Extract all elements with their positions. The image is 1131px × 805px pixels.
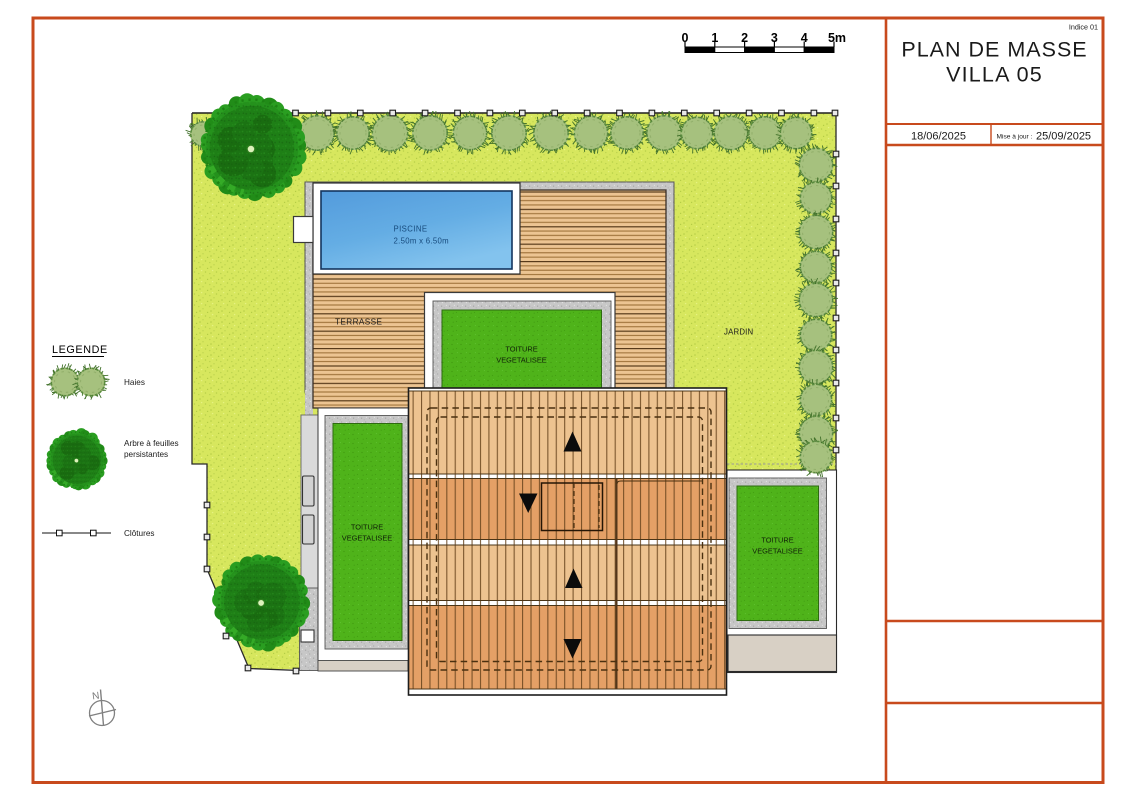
svg-text:PISCINE: PISCINE xyxy=(394,225,428,234)
svg-text:25/09/2025: 25/09/2025 xyxy=(1036,131,1091,143)
svg-text:2: 2 xyxy=(741,31,748,45)
svg-text:JARDIN: JARDIN xyxy=(724,328,753,337)
svg-text:N: N xyxy=(91,691,100,703)
svg-text:TERRASSE: TERRASSE xyxy=(335,318,382,327)
svg-text:VILLA 05: VILLA 05 xyxy=(946,63,1043,87)
svg-text:4: 4 xyxy=(801,31,808,45)
svg-text:5m: 5m xyxy=(828,31,846,45)
svg-text:TOITURE: TOITURE xyxy=(761,536,793,545)
svg-text:Haies: Haies xyxy=(124,378,145,387)
svg-text:1: 1 xyxy=(711,31,718,45)
svg-text:VEGETALISEE: VEGETALISEE xyxy=(342,534,392,543)
svg-text:Clôtures: Clôtures xyxy=(124,529,155,538)
svg-text:Indice 01: Indice 01 xyxy=(1069,23,1098,32)
svg-text:LEGENDE: LEGENDE xyxy=(52,344,108,356)
svg-text:Mise à jour :: Mise à jour : xyxy=(997,134,1033,141)
svg-text:Arbre à feuilles: Arbre à feuilles xyxy=(124,439,179,448)
svg-text:2.50m x 6.50m: 2.50m x 6.50m xyxy=(394,237,449,246)
svg-text:VEGETALISEE: VEGETALISEE xyxy=(496,356,546,365)
svg-text:TOITURE: TOITURE xyxy=(505,345,537,354)
svg-text:3: 3 xyxy=(771,31,778,45)
svg-text:VEGETALISEE: VEGETALISEE xyxy=(752,547,802,556)
svg-text:18/06/2025: 18/06/2025 xyxy=(911,131,966,143)
svg-text:0: 0 xyxy=(682,31,689,45)
svg-text:TOITURE: TOITURE xyxy=(351,523,383,532)
svg-text:persistantes: persistantes xyxy=(124,450,168,459)
svg-text:PLAN DE MASSE: PLAN DE MASSE xyxy=(901,38,1087,62)
